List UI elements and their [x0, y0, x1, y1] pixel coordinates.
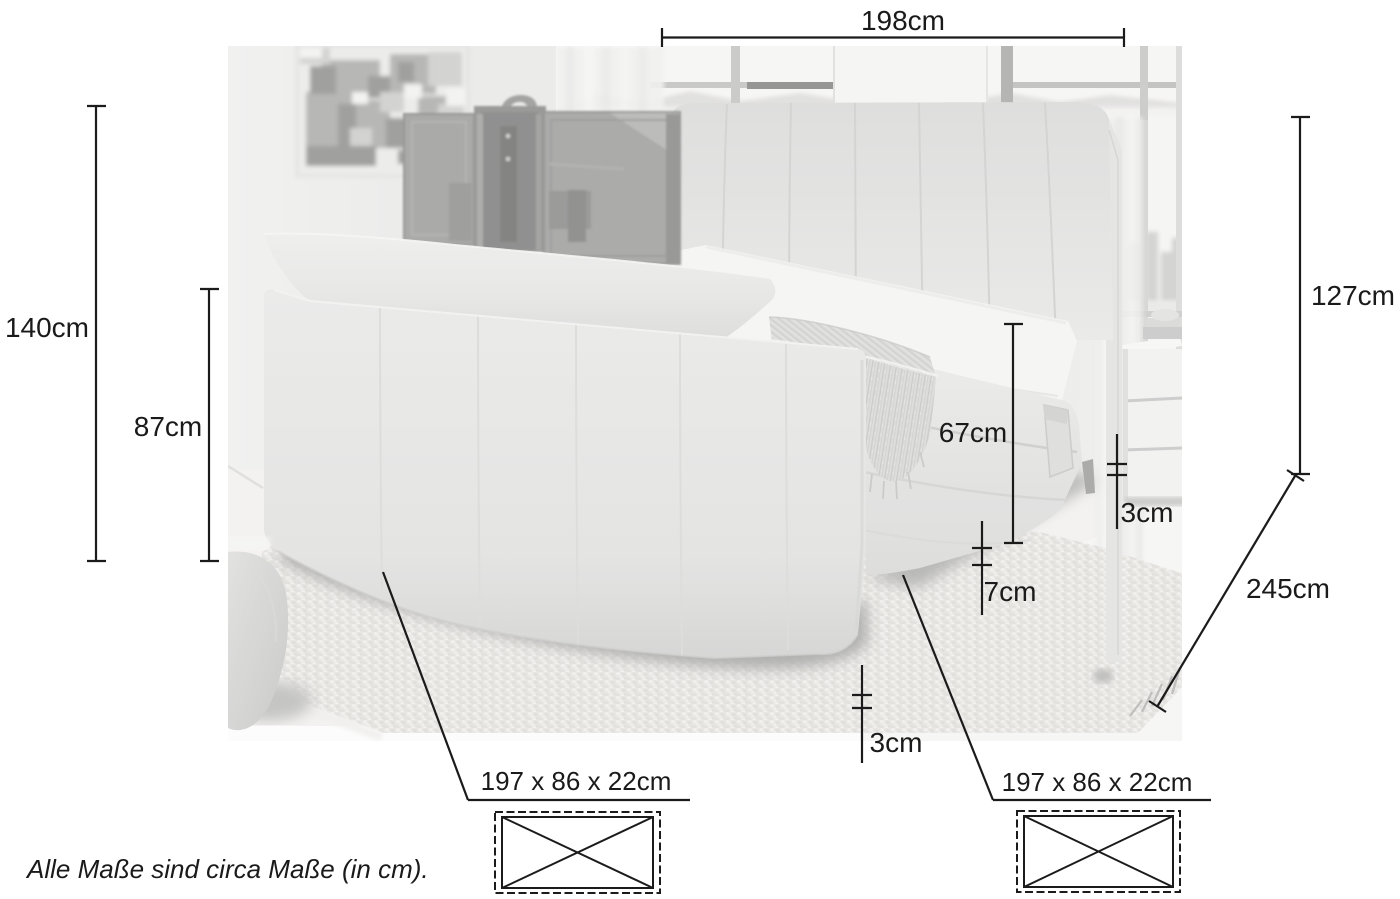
svg-text:198cm: 198cm	[861, 5, 945, 36]
svg-text:87cm: 87cm	[134, 411, 202, 442]
svg-text:3cm: 3cm	[870, 727, 923, 758]
svg-text:67cm: 67cm	[939, 417, 1007, 448]
svg-text:197 x 86 x 22cm: 197 x 86 x 22cm	[481, 766, 672, 796]
svg-text:3cm: 3cm	[1121, 497, 1174, 528]
svg-text:7cm: 7cm	[984, 576, 1037, 607]
svg-text:Alle Maße sind circa Maße (in: Alle Maße sind circa Maße (in cm).	[25, 854, 429, 884]
svg-text:127cm: 127cm	[1311, 280, 1395, 311]
svg-text:140cm: 140cm	[5, 312, 89, 343]
svg-text:197 x 86 x 22cm: 197 x 86 x 22cm	[1002, 767, 1193, 797]
svg-text:245cm: 245cm	[1246, 573, 1330, 604]
